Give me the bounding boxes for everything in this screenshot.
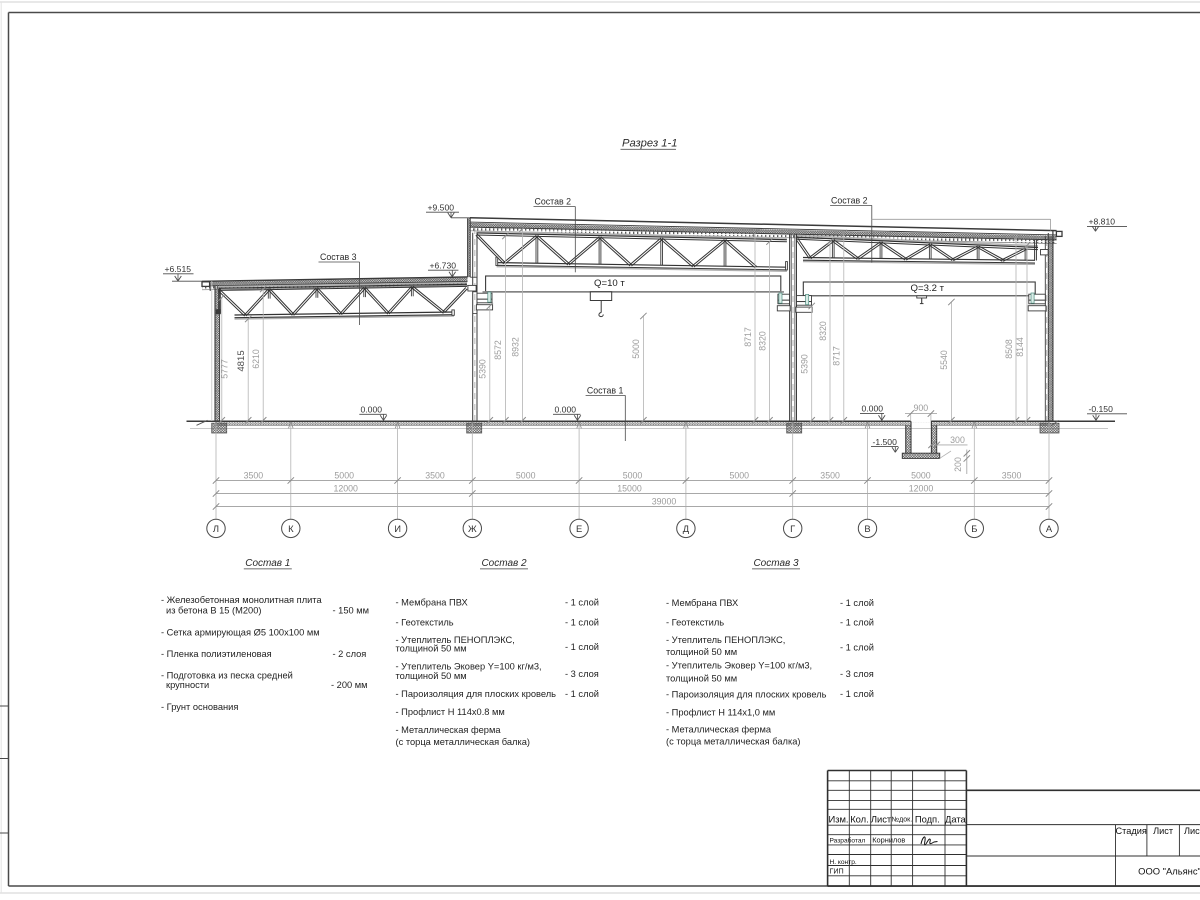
svg-text:толщиной 50 мм: толщиной 50 мм (396, 644, 467, 654)
svg-text:5540: 5540 (939, 350, 949, 370)
svg-text:0.000: 0.000 (361, 405, 383, 415)
svg-text:- Пленка полиэтиленовая: - Пленка полиэтиленовая (161, 649, 272, 659)
svg-text:(с торца металлическая балка): (с торца металлическая балка) (666, 737, 801, 747)
svg-text:8320: 8320 (818, 321, 828, 341)
svg-text:Состав 1: Состав 1 (587, 386, 624, 396)
svg-text:№док.: №док. (892, 816, 913, 823)
svg-text:- Грунт основания: - Грунт основания (161, 702, 238, 712)
svg-text:8932: 8932 (510, 337, 520, 357)
svg-text:Разработал: Разработал (830, 836, 866, 844)
svg-text:- Геотекстиль: - Геотекстиль (396, 617, 454, 627)
svg-text:Н. контр.: Н. контр. (830, 859, 857, 866)
svg-text:5000: 5000 (631, 339, 641, 359)
svg-text:8717: 8717 (832, 346, 842, 366)
svg-text:Д: Д (683, 523, 690, 534)
svg-text:15000: 15000 (617, 483, 642, 493)
svg-text:900: 900 (913, 403, 928, 413)
svg-text:из бетона В 15 (М200): из бетона В 15 (М200) (166, 606, 262, 616)
svg-text:5390: 5390 (800, 354, 810, 374)
svg-text:- 3 слоя: - 3 слоя (840, 669, 874, 679)
svg-text:Состав 3: Состав 3 (320, 252, 357, 262)
svg-text:5390: 5390 (478, 359, 488, 379)
svg-text:- 3 слоя: - 3 слоя (565, 669, 599, 679)
svg-text:+8.810: +8.810 (1089, 217, 1116, 227)
svg-text:Ж: Ж (468, 523, 477, 534)
svg-text:Е: Е (576, 523, 582, 534)
svg-text:8144: 8144 (1015, 337, 1025, 357)
svg-text:6210: 6210 (251, 349, 261, 369)
svg-text:- Пароизоляция для плоских кро: - Пароизоляция для плоских кровель (666, 690, 827, 700)
svg-text:Подп.: Подп. (915, 813, 940, 824)
svg-text:- 1 слой: - 1 слой (565, 642, 599, 652)
svg-text:-1.500: -1.500 (873, 437, 898, 447)
svg-text:- Подготовка из песка средней: - Подготовка из песка средней (161, 671, 293, 681)
svg-text:Кол.: Кол. (850, 813, 869, 824)
svg-text:Лист: Лист (871, 813, 892, 824)
svg-text:-0.150: -0.150 (1089, 404, 1114, 414)
svg-text:- 1 слой: - 1 слой (840, 617, 874, 627)
svg-text:А: А (1046, 523, 1053, 534)
svg-text:толщиной 50 мм: толщиной 50 мм (666, 674, 737, 684)
svg-text:толщиной 50 мм: толщиной 50 мм (666, 647, 737, 657)
svg-text:В: В (864, 523, 870, 534)
svg-text:39000: 39000 (652, 496, 677, 506)
svg-text:ООО "Альянс": ООО "Альянс" (1138, 865, 1200, 876)
svg-text:- Мембрана ПВХ: - Мембрана ПВХ (666, 598, 738, 608)
svg-text:3500: 3500 (425, 470, 445, 480)
svg-text:5000: 5000 (730, 470, 750, 480)
svg-text:- Утеплитель Эковер Y=100 кг/м: - Утеплитель Эковер Y=100 кг/м3, (666, 661, 812, 671)
svg-text:К: К (288, 523, 294, 534)
svg-text:4815: 4815 (236, 350, 247, 371)
svg-text:крупности: крупности (166, 680, 209, 690)
svg-text:- 1 слой: - 1 слой (840, 689, 874, 699)
svg-text:0.000: 0.000 (555, 405, 577, 415)
svg-text:Л: Л (213, 523, 219, 534)
svg-text:12000: 12000 (909, 483, 934, 493)
svg-text:- Мембрана ПВХ: - Мембрана ПВХ (396, 597, 468, 607)
svg-text:толщиной 50 мм: толщиной 50 мм (396, 671, 467, 681)
svg-text:Состав 2: Состав 2 (831, 195, 868, 205)
svg-text:5000: 5000 (516, 470, 536, 480)
svg-text:300: 300 (950, 435, 965, 445)
svg-text:Изм.: Изм. (828, 813, 848, 824)
svg-text:- Утеплитель ПЕНОПЛЭКС,: - Утеплитель ПЕНОПЛЭКС, (666, 635, 785, 645)
svg-text:Состав 2: Состав 2 (535, 197, 572, 207)
svg-text:Лист: Лист (1184, 826, 1200, 836)
svg-text:+6.730: +6.730 (430, 260, 457, 270)
svg-text:Корнилов: Корнилов (872, 835, 905, 844)
svg-text:Лист: Лист (1153, 826, 1174, 836)
svg-text:8717: 8717 (743, 327, 753, 347)
svg-text:Стадия: Стадия (1116, 826, 1147, 836)
svg-text:5777: 5777 (219, 359, 229, 379)
svg-text:Q=3.2 т: Q=3.2 т (911, 283, 945, 294)
svg-text:- 1 слой: - 1 слой (840, 643, 874, 653)
svg-text:+9.500: +9.500 (428, 202, 455, 212)
svg-text:- 150 мм: - 150 мм (333, 606, 370, 616)
svg-text:Г: Г (790, 523, 795, 534)
svg-text:(с торца металлическая балка): (с торца металлическая балка) (396, 737, 531, 747)
svg-text:- Профлист Н 114х1,0 мм: - Профлист Н 114х1,0 мм (666, 708, 775, 718)
svg-text:5000: 5000 (334, 470, 354, 480)
svg-text:Q=10 т: Q=10 т (594, 278, 625, 289)
svg-text:3500: 3500 (1002, 470, 1022, 480)
svg-text:5000: 5000 (623, 470, 643, 480)
svg-text:- Профлист Н 114х0.8 мм: - Профлист Н 114х0.8 мм (396, 707, 505, 717)
svg-text:- Пароизоляция для плоских кро: - Пароизоляция для плоских кровель (396, 689, 557, 699)
svg-text:- Железобетонная монолитная п: - Железобетонная монолитная плита (161, 595, 322, 605)
svg-text:5000: 5000 (911, 470, 931, 480)
svg-text:И: И (394, 523, 401, 534)
svg-text:200: 200 (953, 457, 963, 472)
svg-text:ГИП: ГИП (830, 867, 844, 876)
svg-text:- Геотекстиль: - Геотекстиль (666, 617, 724, 627)
svg-text:Состав 3: Состав 3 (753, 558, 799, 569)
svg-text:Б: Б (971, 523, 977, 534)
svg-text:+6.515: +6.515 (165, 264, 192, 274)
svg-text:- Металлическая ферма: - Металлическая ферма (396, 725, 502, 735)
svg-text:3500: 3500 (244, 470, 264, 480)
svg-text:Состав 1: Состав 1 (245, 558, 290, 569)
svg-text:- 200 мм: - 200 мм (331, 680, 368, 690)
svg-text:8320: 8320 (757, 331, 767, 351)
svg-text:- 1 слой: - 1 слой (565, 617, 599, 627)
svg-text:- 1 слой: - 1 слой (565, 689, 599, 699)
svg-text:Дата: Дата (945, 813, 967, 824)
svg-text:Разрез 1-1: Разрез 1-1 (622, 137, 677, 149)
svg-text:- 2 слоя: - 2 слоя (333, 649, 367, 659)
svg-text:0.000: 0.000 (862, 404, 884, 414)
svg-text:- 1 слой: - 1 слой (565, 597, 599, 607)
svg-text:8508: 8508 (1004, 339, 1014, 359)
svg-text:- Металлическая ферма: - Металлическая ферма (666, 725, 772, 735)
svg-text:12000: 12000 (333, 483, 358, 493)
svg-text:Состав 2: Состав 2 (481, 558, 527, 569)
svg-text:- 1 слой: - 1 слой (840, 598, 874, 608)
svg-text:8572: 8572 (493, 340, 503, 360)
svg-text:3500: 3500 (820, 470, 840, 480)
svg-text:- Сетка армирующая Ø5 100х100: - Сетка армирующая Ø5 100х100 мм (161, 628, 320, 638)
